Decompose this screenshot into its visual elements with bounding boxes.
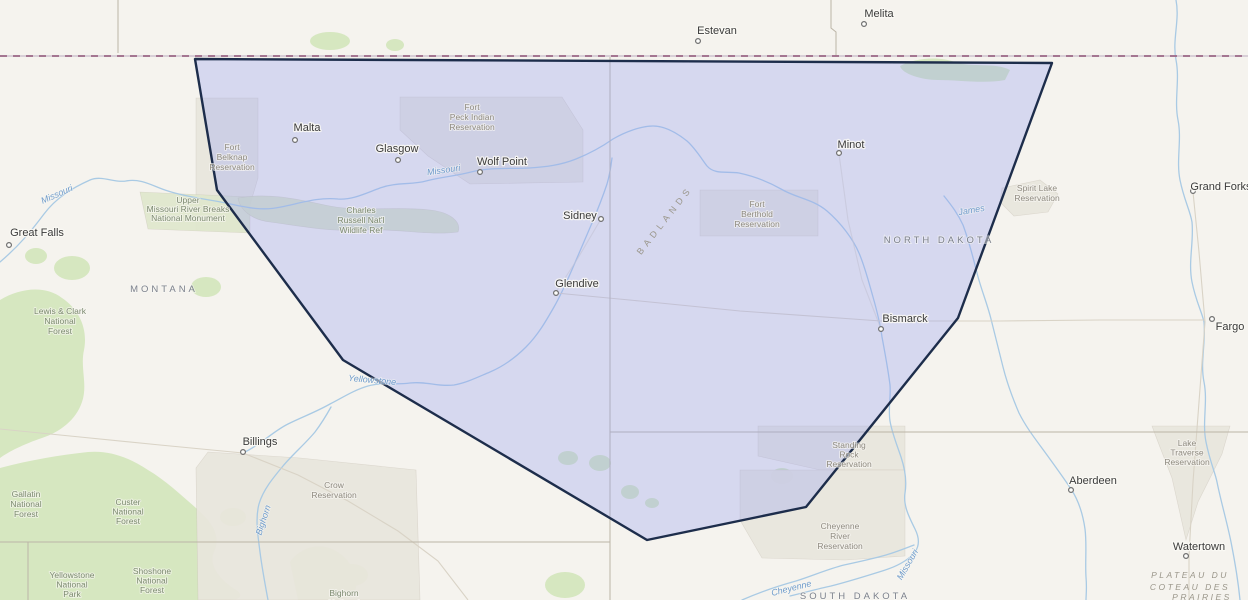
city-label-aberdeen: Aberdeen — [1069, 475, 1117, 487]
city-label-glasgow: Glasgow — [376, 143, 419, 155]
plateau-line-3: PRAIRIES — [1172, 592, 1232, 600]
plateau-line-2: COTEAU DES — [1150, 582, 1230, 592]
state-label-south-dakota: SOUTH DAKOTA — [800, 591, 910, 600]
city-label-wolf-point: Wolf Point — [477, 156, 527, 168]
border-sask-manitoba-border — [831, 0, 836, 56]
city-marker-malta — [293, 138, 298, 143]
city-label-sidney: Sidney — [563, 210, 597, 222]
city-label-glendive: Glendive — [555, 278, 598, 290]
city-marker-estevan — [696, 39, 701, 44]
city-label-estevan: Estevan — [697, 25, 737, 37]
city-marker-aberdeen — [1069, 488, 1074, 493]
city-label-malta: Malta — [294, 122, 322, 134]
forest-bears-paw — [54, 256, 90, 280]
basemap-canvas[interactable]: MONTANANORTH DAKOTASOUTH DAKOTAFortBelkn… — [0, 0, 1248, 600]
river-label-missouri-label-west: Missouri — [39, 182, 75, 205]
forest-black-hills-edge — [545, 572, 585, 598]
city-label-bismarck: Bismarck — [882, 313, 928, 325]
city-marker-billings — [241, 450, 246, 455]
map-viewport[interactable]: MONTANANORTH DAKOTASOUTH DAKOTAFortBelkn… — [0, 0, 1248, 600]
bighorn-forest-label: BighornNational — [328, 588, 359, 600]
city-label-billings: Billings — [243, 436, 278, 448]
city-marker-wolf-point — [478, 170, 483, 175]
city-marker-melita — [862, 22, 867, 27]
city-marker-great-falls — [7, 243, 12, 248]
spirit-lake-label: Spirit LakeReservation — [1014, 183, 1060, 203]
forest-canada-blob-1 — [310, 32, 350, 50]
custer-label: CusterNationalForest — [112, 497, 143, 526]
city-marker-bismarck — [879, 327, 884, 332]
city-label-melita: Melita — [864, 8, 894, 20]
city-label-fargo: Fargo — [1216, 321, 1245, 333]
city-marker-minot — [837, 151, 842, 156]
city-label-great-falls: Great Falls — [10, 227, 64, 239]
forest-highwood — [25, 248, 47, 264]
city-marker-fargo — [1210, 317, 1215, 322]
city-marker-watertown — [1184, 554, 1189, 559]
city-marker-sidney — [599, 217, 604, 222]
city-label-minot: Minot — [838, 139, 865, 151]
city-marker-glasgow — [396, 158, 401, 163]
forest-canada-blob-2 — [386, 39, 404, 51]
city-label-watertown: Watertown — [1173, 541, 1225, 553]
state-label-montana: MONTANA — [130, 284, 198, 295]
plateau-line-1: PLATEAU DU — [1151, 570, 1229, 580]
gallatin-label: GallatinNationalForest — [10, 489, 41, 519]
state-label-north-dakota: NORTH DAKOTA — [884, 235, 995, 246]
city-marker-glendive — [554, 291, 559, 296]
city-label-grand-forks: Grand Forks — [1190, 181, 1248, 193]
area-crow-reservation — [196, 452, 420, 600]
